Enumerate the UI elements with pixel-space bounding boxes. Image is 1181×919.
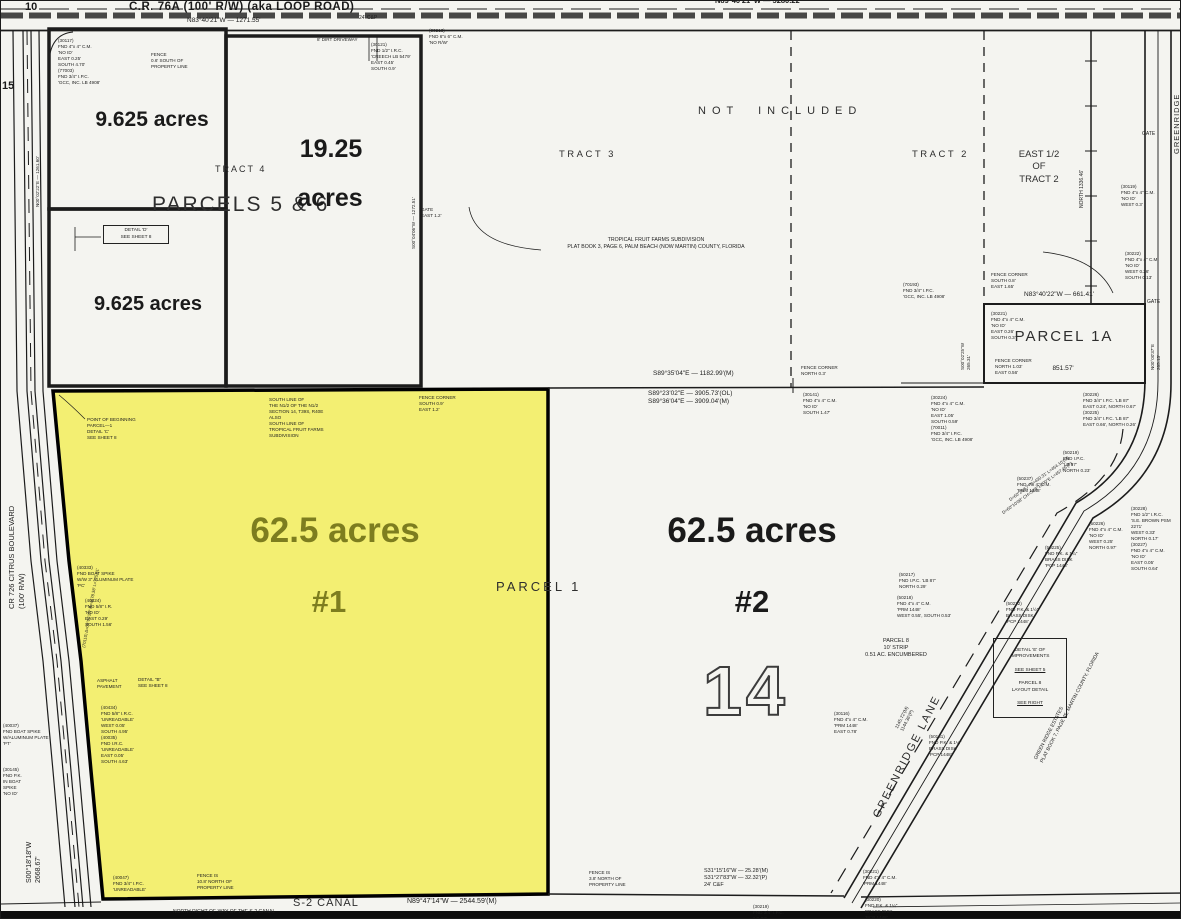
subdivision-note: TROPICAL FRUIT FARMS SUBDIVISION PLAT BO… [567,237,744,251]
bearing-label: N00°02'22"E — 1261.60' [35,156,41,207]
fence-note: FENCE 0.6' SOUTH OF PROPERTY LINE [151,52,188,70]
parcel1-highlight [53,389,548,899]
gate-note: GATE EAST 1.2' [421,207,441,219]
monument-note: (40037) FND BOAT SPIKE W/ALUMINUM PLATE … [3,723,49,747]
parcel-1-label: PARCEL 1 [496,580,581,595]
s2-canal-bearing: N89°47'14"W — 2544.59'(M) [407,898,497,906]
monument-note: (50218) FND 4"x 4" C.M. 'PRM 1448' WEST … [897,595,951,619]
fence-note: FENCE CORNER SOUTH 0.8' EAST 1.65' [991,272,1028,290]
section-corner-15: 15 [2,80,14,92]
bearing-label: S00°02'25"W 265.31' [960,343,972,370]
bearing-label: S89°23'02"E — 3905.73'(OL) S89°36'04"E —… [648,390,732,407]
monument-note: (30116) FND 4"x 4" C.M. 'PRM 1448' EAST … [834,711,868,735]
bearing-label: N00°00'37"E 265.13' [1150,344,1162,370]
cr76a-bearing: N83°40'21"W — 1271.55' [187,17,261,24]
monument-note: (30221) FND 4"x 4" C.M. 'NO ID' EAST 0.2… [991,311,1025,341]
detail-note: DETAIL "B" SEE SHEET 8 [138,677,168,689]
pavement-note: ASPHALT PAVEMENT [97,678,122,690]
monument-note: (30226) FND 3/4" I.P.C. 'LB 87' EAST 0.2… [1083,392,1136,428]
driveway-note: 8' DIRT DRIVEWAY [317,37,358,43]
monument-note: (40047) FND 3/4" I.P.C. 'UNREADABLE' [113,875,146,893]
monument-note: (70193) FND 3/4" I.P.C. 'GCC, INC. LB 49… [903,282,945,300]
monument-note: (50217) FND I.P.C. 'LB 87' NORTH 0.29' [899,572,936,590]
monument-note: (30119) FND 4"x 4" C.M. 'NO ID' WEST 0.3… [1121,184,1155,208]
parcel8-note: PARCEL 8 10' STRIP 0.51 AC. ENCUMBERED [865,638,927,659]
detail-e-text: PARCEL 8 LAYOUT DETAIL [997,681,1063,694]
tract-2-label: TRACT 2 [912,150,969,161]
greenridge-lane-label: GREENRIDGE LANE [1172,94,1181,154]
detail-d-box: DETAIL 'D' SEE SHEET 8 [103,225,169,244]
road-note: 24' C&P [359,15,377,22]
monument-note: (30121) FND 1/2" I.R.C. 'CREECH LB 5479'… [371,42,411,72]
monument-note: (30117) FND 4"x 4" C.M. 'NO ID' EAST 0.2… [58,38,100,86]
bearing-label: S00°18'18"W 2668.67' [25,842,43,883]
fence-note: FENCE IS 3.8' NORTH OF PROPERTY LINE [589,870,626,888]
monument-note: (30141) FND 4"x 4" C.M. 'NO ID' SOUTH 1.… [803,392,837,416]
acreage-parcel1: 62.5 acres [250,511,419,550]
monument-note: (50225) FND P.K. & 1¼" BRASS DISK 'PCP 1… [1045,545,1077,569]
section-corner-10: 10 [25,1,37,13]
monument-note: (30228) FND 1/2" I.R.C. 'S.E. BROWN PSM … [1131,506,1180,572]
acreage-parcel-sw: 9.625 acres [94,293,202,315]
acreage-parcel-nw: 9.625 acres [95,108,208,132]
monument-note: (30219) FND 3/4" I.P.C. 'LB 87' [753,904,784,919]
acreage-parcel1-number: #1 [312,585,346,620]
monument-note: (50226) FND 4"x 4" C.M. 'NO ID' WEST 0.2… [1089,521,1123,551]
gate-label: GATE [1142,132,1155,138]
monument-note: (50131) FND P.K. & 1¼" BRASS DISK 'PCP 1… [929,734,961,758]
road-cr76a-label: C.R. 76A (100' R/W) (aka LOOP ROAD) [129,1,354,14]
not-included-label: NOT INCLUDED [698,105,862,117]
parcel-1a-bearing: N83°40'22"W — 661.41' [1024,291,1094,298]
monument-note: (50232) FND P.K. & 1½" BRASS DISK 'PCP 1… [1006,601,1038,625]
east-half-tract2-label: EAST 1/2 OF TRACT 2 [1019,149,1060,186]
acreage-parcel2: 62.5 acres [667,511,836,550]
tract-3-label: TRACT 3 [559,150,616,161]
fence-note: FENCE IS 10.8' NORTH OF PROPERTY LINE [197,873,234,891]
bearing-label: S89°35'04"E — 1182.99'(M) [653,370,734,378]
monument-note: (30222) FND 4"x 4" C.M. 'NO ID' WEST 0.2… [1125,251,1159,281]
survey-linework: 14 [1,1,1181,919]
acreage-parcels56-value: 19.25 [300,135,363,163]
monument-note: (30220) FND P.K. & 1¼" BRASS DISK 'PCP 1… [865,897,897,919]
monument-note: (40434) FND 5/8" I.R.C. 'UNREADABLE' WES… [101,705,134,765]
parcel-1a-dimension: 851.57' [1052,365,1073,372]
acreage-parcel2-number: #2 [735,585,769,620]
bearing-label: S31°15'16"W — 25.28'(M) S31°27'83"W — 32… [704,868,768,889]
fence-note: FENCE CORNER NORTH 1.03' EAST 0.56' [995,358,1032,376]
detail-e-text: SEE RIGHT [997,701,1063,708]
acreage-parcels56-unit: acres [297,184,362,212]
plat-map: 14 C.R. 76A (100' R/W) (aka LOOP ROAD) N… [0,0,1181,919]
gate-label: GATE [1147,300,1160,306]
canal-row-note: NORTH RIGHT-OF-WAY OF THE S-2 CANAL [173,909,275,916]
top-right-bearing: N89°40'21"W — 5280.22' [715,0,801,5]
citrus-boulevard-label: CR 726 CITRUS BOULEVARD (100' R/W) [7,506,27,609]
detail-e-box: DETAIL 'E' OF IMPROVEMENTS SEE SHEET 5 P… [993,638,1067,718]
parcel-1a-label: PARCEL 1A [1015,329,1114,346]
monument-note: (40333) FND BOAT SPIKE W/W 3" ALUMINUM P… [77,565,133,589]
fence-note: FENCE CORNER SOUTH 0.9' EAST 1.2' [419,395,456,413]
monument-note: (30221) FND 4"x 4" C.M. 'PRM 1448' [863,869,897,887]
section-line-note: SOUTH LINE OF THE N1/2 OF THE N1/2 SECTI… [269,397,324,439]
s2-canal-label: S-2 CANAL [293,897,359,909]
bearing-label: S00°04'06"W — 1272.51' [411,197,417,249]
fence-note: FENCE CORNER NORTH 0.3' [801,365,838,377]
monument-note: (30224) FND 4"x 4" C.M. 'NO ID' EAST 1.0… [931,395,973,443]
monument-note: (30145) FND P.K. IN BOAT SPIKE 'NO ID' [3,767,22,797]
detail-e-text: SEE SHEET 5 [997,668,1063,675]
section-number: 14 [703,652,789,730]
monument-note: (30213) FND 6"x 6" C.M. 'NO R/W' [429,28,463,46]
bearing-label: NORTH 1336.46' [1079,170,1086,208]
tract-4-label: TRACT 4 [215,164,266,174]
pob-note: POINT OF BEGINNING PARCEL—1 DETAIL 'C' S… [87,417,136,441]
detail-e-text: DETAIL 'E' OF IMPROVEMENTS [997,648,1063,661]
